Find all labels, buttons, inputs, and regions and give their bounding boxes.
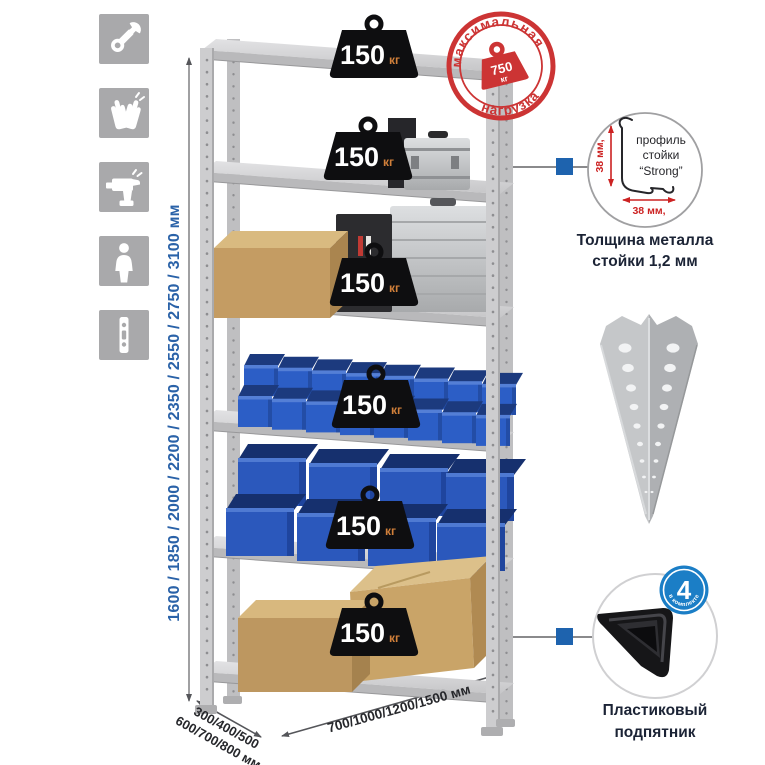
max-load-stamp: максимальная нагрузка 750 кг (438, 3, 564, 129)
profile-caption-line1: Толщина металла (577, 232, 714, 250)
height-dimension-label: 1600 / 1850 / 2000 / 2200 / 2350 / 2550 … (166, 204, 184, 621)
included-badge: 4 в комплекте (660, 566, 709, 615)
svg-text:“Strong”: “Strong” (639, 164, 682, 178)
svg-text:стойки: стойки (643, 148, 680, 162)
corner-post-image (600, 314, 698, 524)
profile-caption-line2: стойки 1,2 мм (592, 253, 697, 271)
cardboard-box-shelf3 (214, 231, 348, 318)
svg-text:38 мм,: 38 мм, (632, 205, 665, 217)
svg-text:38 мм,: 38 мм, (594, 139, 606, 172)
illustration-canvas: 150кг 150кг 150кг 150кг 150кг 150кг (0, 0, 765, 765)
post-profile-circle: 38 мм, 38 мм, профиль стойки “Strong” (588, 113, 702, 227)
weight-badge-1: 150кг (330, 17, 418, 78)
svg-text:профиль: профиль (636, 133, 686, 147)
shelving-infographic: 150кг 150кг 150кг 150кг 150кг 150кг (0, 0, 765, 765)
foot-caption-line1: Пластиковый (603, 702, 708, 720)
svg-text:4: 4 (677, 575, 692, 605)
foot-caption-line2: подпятник (614, 724, 695, 742)
